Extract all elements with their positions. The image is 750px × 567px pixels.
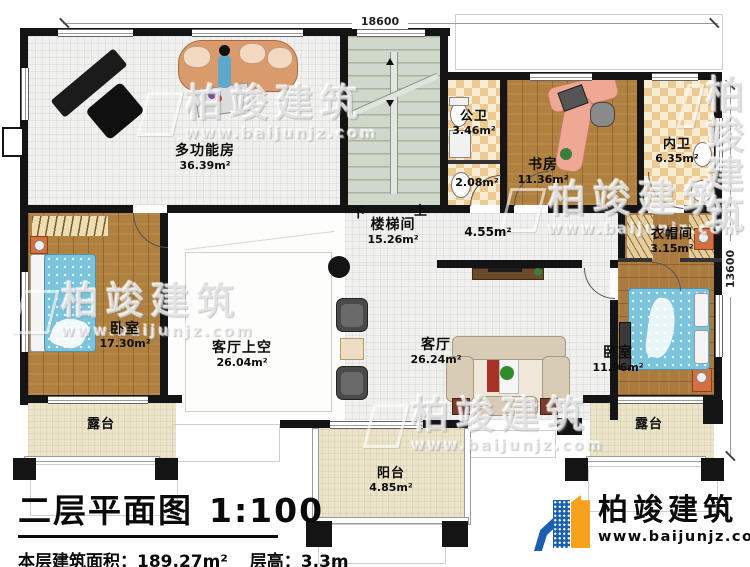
floor-height-text: 层高：3.3m (250, 547, 349, 567)
door-gap (514, 205, 548, 213)
column (13, 458, 36, 480)
round-column (328, 256, 350, 278)
lamp-icon (696, 372, 707, 383)
toilet-tank (449, 97, 469, 106)
room-label-ensuite-bath: 内卫6.35m² (646, 138, 708, 165)
window (618, 396, 703, 404)
column (565, 458, 588, 481)
wall-cloak-divider-b (680, 258, 722, 262)
logo-tower-orange-icon (571, 495, 590, 548)
title-underline (18, 535, 278, 538)
desk-chair (590, 102, 615, 127)
wall-living-bottom-a (280, 420, 330, 428)
window (21, 272, 29, 352)
room-label-cloakroom: 衣帽间3.15m² (638, 228, 706, 255)
window (652, 73, 698, 81)
person-head (219, 45, 230, 56)
wall-stair-left (340, 36, 348, 213)
person (218, 55, 231, 88)
sofa-cushion (267, 47, 293, 69)
brand-name: 柏竣建筑 (598, 495, 750, 527)
side-table (540, 398, 558, 415)
window (21, 68, 29, 120)
pillow (694, 293, 709, 327)
window (192, 29, 303, 37)
armchair (336, 298, 368, 332)
nightstand (30, 236, 48, 254)
parapet (24, 456, 160, 462)
sofa-cushion (183, 46, 211, 68)
roof-outline (468, 430, 556, 458)
flowers (215, 95, 222, 102)
room-label-terrace-left: 露台 (72, 418, 130, 433)
wall-mid-band (20, 205, 447, 213)
brand-logo: 柏竣建筑 www.baijunjz.com (534, 495, 750, 553)
armchair-cushion (341, 372, 363, 395)
room-label-living-room: 客厅26.24m² (400, 338, 472, 366)
pillow (694, 330, 709, 364)
window (715, 295, 723, 357)
room-label-corridor: 4.55m² (458, 226, 518, 239)
wall-corridor-bottom (437, 260, 582, 268)
logo-tower-blue-icon (553, 500, 570, 548)
parapet (586, 456, 706, 462)
wall-publicbath-divider (448, 160, 500, 164)
stair-arrow-up (386, 58, 394, 65)
column (701, 458, 724, 481)
sliding-door (330, 421, 423, 429)
window (357, 29, 425, 37)
room-label-living-void: 客厅上空26.04m² (196, 341, 288, 369)
column (703, 400, 723, 424)
room-label-staircase: 楼梯间15.26m² (356, 218, 430, 246)
lamp-icon (34, 240, 45, 251)
title-block: 二层平面图 1:100 本层建筑面积：189.27m² 层高：3.3m (18, 484, 349, 567)
roof-outline (172, 424, 280, 462)
dimension-right-label: 13600 (724, 241, 738, 297)
closet-hangers (31, 215, 109, 237)
bench (474, 396, 538, 416)
column (155, 458, 178, 480)
wall-living-bottom-b (423, 420, 468, 428)
room-label-bedroom-right: 卧室11.96m² (582, 346, 654, 374)
wall-cloak-divider-a (618, 258, 652, 262)
window (58, 29, 133, 37)
window (48, 396, 148, 404)
door-gap (133, 205, 167, 213)
floor-area-text: 本层建筑面积：189.27m² (18, 547, 228, 567)
room-label-multi-function: 多功能房36.39m² (150, 144, 260, 172)
stair-up-label: 上 (414, 200, 427, 219)
sofa-chaise (542, 356, 570, 402)
column (442, 521, 468, 547)
room-label-public-bath: 公卫3.46m² (443, 110, 505, 137)
wall-study-right (637, 80, 644, 213)
wall-publicbath-right (500, 80, 507, 213)
floor-plan-page: 18600 13600 多功能房36.39m² 公卫3.46m² 2.08m² … (0, 0, 750, 567)
room-label-washroom: 2.08m² (448, 177, 506, 189)
armchair-cushion (341, 304, 363, 327)
room-label-bedroom-left: 卧室17.30m² (90, 322, 160, 350)
wall-cloak-left (618, 213, 625, 260)
armchair (336, 366, 368, 400)
dimension-top-label: 18600 (352, 15, 408, 29)
window (530, 73, 592, 81)
wall-living-right-stub (610, 260, 618, 268)
window (715, 118, 723, 170)
plant-center (500, 366, 514, 380)
side-table (452, 398, 470, 415)
stair-down-label: 下 (352, 202, 365, 221)
room-label-balcony: 阳台4.85m² (360, 467, 422, 494)
nightstand (692, 368, 712, 392)
plant (534, 268, 542, 276)
wall-living-corner (557, 418, 582, 435)
brand-url: www.baijunjz.com (598, 529, 750, 545)
flue-box (2, 127, 24, 157)
stair-arrow-down (386, 100, 394, 107)
rug-pattern (487, 356, 499, 392)
wash-basin (691, 180, 713, 202)
plan-scale: 1:100 (209, 491, 324, 530)
side-table (340, 338, 364, 360)
parapet (464, 428, 471, 525)
brand-logo-icon (534, 495, 590, 553)
room-label-terrace-right: 露台 (620, 418, 678, 433)
door-gap (470, 205, 500, 213)
sofa-cushion (239, 43, 266, 64)
stair-stringer (390, 52, 398, 194)
plan-title: 二层平面图 (18, 484, 193, 532)
room-label-study: 书房11.36m² (512, 158, 574, 186)
void-roof-outline (185, 252, 332, 412)
